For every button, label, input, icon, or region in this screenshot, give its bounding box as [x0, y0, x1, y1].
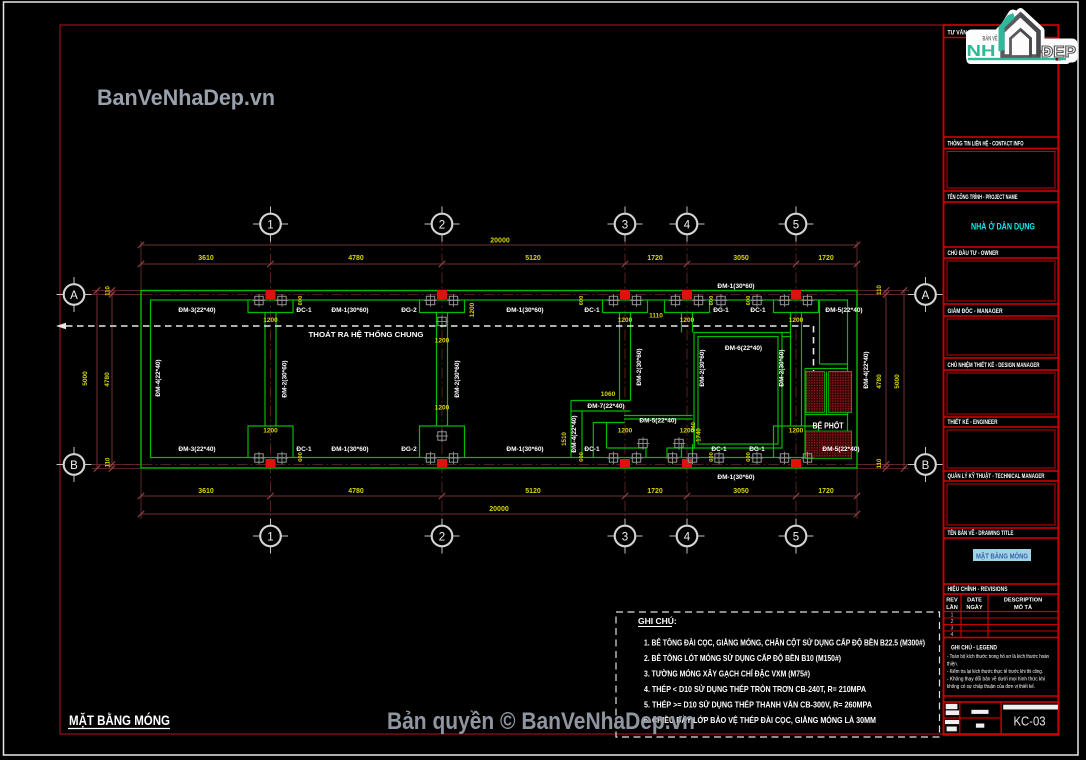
svg-text:4780: 4780	[876, 374, 883, 389]
svg-text:ĐM-5(22*40): ĐM-5(22*40)	[822, 446, 859, 453]
svg-text:4: 4	[684, 531, 691, 543]
svg-text:3050: 3050	[733, 255, 749, 262]
svg-text:Bản quyền © BanVeNhaDep.vn: Bản quyền © BanVeNhaDep.vn	[387, 708, 695, 735]
svg-text:4780: 4780	[348, 488, 364, 495]
svg-text:3610: 3610	[198, 255, 214, 262]
svg-text:1: 1	[267, 219, 273, 231]
svg-text:1200: 1200	[789, 317, 804, 324]
svg-text:LẦN: LẦN	[946, 604, 958, 611]
svg-text:A: A	[70, 290, 78, 302]
svg-text:1720: 1720	[647, 255, 663, 262]
svg-text:GIÁM ĐỐC - MANAGER: GIÁM ĐỐC - MANAGER	[948, 305, 1003, 315]
svg-text:ĐM-3(22*40): ĐM-3(22*40)	[178, 446, 215, 453]
svg-text:ĐM-1(30*60): ĐM-1(30*60)	[506, 446, 543, 453]
svg-text:CHỦ NHIỆM THIẾT KẾ - DESIGN MA: CHỦ NHIỆM THIẾT KẾ - DESIGN MANAGER	[948, 359, 1040, 369]
svg-text:1720: 1720	[818, 255, 834, 262]
svg-text:ĐC-1: ĐC-1	[750, 307, 766, 314]
svg-text:không có sự chấp thuận của đơn: không có sự chấp thuận của đơn vị thiết …	[947, 683, 1035, 690]
svg-text:1200: 1200	[618, 317, 633, 324]
svg-text:MẶT BẰNG MÓNG: MẶT BẰNG MÓNG	[69, 713, 170, 728]
svg-text:- Toàn bộ kích thước trong hồ: - Toàn bộ kích thước trong hồ sơ là kích…	[947, 654, 1049, 660]
svg-text:2: 2	[439, 531, 445, 543]
svg-text:110: 110	[877, 285, 883, 295]
svg-text:3. TƯỜNG MÓNG XÂY GẠCH CHỈ ĐẶC: 3. TƯỜNG MÓNG XÂY GẠCH CHỈ ĐẶC VXM (M75#…	[644, 668, 810, 679]
svg-text:3050: 3050	[733, 488, 749, 495]
svg-text:600: 600	[746, 452, 752, 462]
svg-text:4: 4	[684, 219, 691, 231]
svg-text:1720: 1720	[647, 488, 663, 495]
svg-text:ĐM-2(30*60): ĐM-2(30*60)	[454, 360, 461, 397]
svg-text:2. BÊ TÔNG LÓT MÓNG SỬ DỤNG CẤ: 2. BÊ TÔNG LÓT MÓNG SỬ DỤNG CẤP ĐỘ BỀN B…	[644, 652, 841, 663]
svg-text:2: 2	[951, 619, 954, 625]
svg-text:DATE: DATE	[967, 598, 982, 604]
svg-text:3: 3	[951, 626, 954, 632]
svg-text:ĐM-1(30*60): ĐM-1(30*60)	[506, 307, 543, 314]
svg-text:1060: 1060	[601, 391, 616, 398]
svg-text:1110: 1110	[649, 313, 663, 320]
svg-text:MÔ TẢ: MÔ TẢ	[1014, 603, 1032, 611]
svg-text:ĐM-7(22*40): ĐM-7(22*40)	[587, 403, 624, 410]
svg-text:600: 600	[298, 296, 304, 306]
svg-text:5120: 5120	[525, 255, 541, 262]
svg-text:5: 5	[793, 219, 799, 231]
svg-text:1200: 1200	[435, 338, 450, 345]
svg-text:1200: 1200	[469, 302, 476, 317]
svg-text:ĐM-2(30*60): ĐM-2(30*60)	[636, 348, 643, 385]
svg-text:NH: NH	[967, 43, 996, 60]
svg-text:ĐM-3(22*40): ĐM-3(22*40)	[178, 307, 215, 314]
svg-text:1. BÊ TÔNG ĐÀI CỌC, GIẰNG MÓNG: 1. BÊ TÔNG ĐÀI CỌC, GIẰNG MÓNG, CHÂN CỘT…	[644, 637, 925, 648]
svg-text:- Không thay đổi bản vẽ dưới m: - Không thay đổi bản vẽ dưới mọi hình th…	[947, 676, 1045, 683]
svg-text:HIỆU CHỈNH - REVISIONS: HIỆU CHỈNH - REVISIONS	[948, 584, 1009, 593]
svg-text:1200: 1200	[618, 428, 633, 435]
svg-text:MẶT BẰNG MÓNG: MẶT BẰNG MÓNG	[976, 552, 1028, 561]
svg-text:NGÀY: NGÀY	[966, 604, 982, 611]
svg-text:KC-03: KC-03	[1014, 715, 1046, 729]
svg-text:5000: 5000	[894, 374, 901, 389]
svg-text:110: 110	[877, 458, 883, 468]
svg-text:2: 2	[439, 219, 445, 231]
svg-text:5120: 5120	[525, 488, 541, 495]
svg-text:ĐM-2(30*60): ĐM-2(30*60)	[699, 349, 706, 386]
svg-text:600: 600	[579, 296, 585, 306]
svg-text:GHI CHÚ:: GHI CHÚ:	[638, 615, 677, 626]
svg-text:B: B	[922, 460, 930, 472]
svg-text:940: 940	[691, 422, 697, 432]
svg-text:5000: 5000	[82, 371, 89, 386]
svg-text:3610: 3610	[198, 488, 214, 495]
svg-text:ĐC-1: ĐC-1	[296, 446, 312, 453]
svg-text:TÊN CÔNG TRÌNH - PROJECT NAME: TÊN CÔNG TRÌNH - PROJECT NAME	[948, 192, 1018, 201]
svg-text:- Kiểm tra lại kích thước thực: - Kiểm tra lại kích thước thực tế trước …	[947, 668, 1043, 675]
svg-text:ĐG-1: ĐG-1	[749, 446, 765, 453]
svg-text:ĐG-2: ĐG-2	[401, 307, 417, 314]
svg-text:1720: 1720	[818, 488, 834, 495]
svg-text:DESCRIPTION: DESCRIPTION	[1004, 598, 1042, 604]
svg-text:3: 3	[622, 219, 628, 231]
svg-text:ĐM-1(30*60): ĐM-1(30*60)	[717, 474, 754, 481]
svg-text:BanVeNhaDep.vn: BanVeNhaDep.vn	[97, 85, 275, 110]
svg-text:ĐM-1(30*60): ĐM-1(30*60)	[331, 307, 368, 314]
svg-text:1200: 1200	[789, 428, 804, 435]
svg-text:ĐM-1(30*60): ĐM-1(30*60)	[717, 283, 754, 290]
svg-text:110: 110	[106, 457, 112, 467]
svg-text:ĐC-1: ĐC-1	[584, 307, 600, 314]
svg-text:4780: 4780	[104, 372, 111, 387]
svg-text:ĐM-4(22*40): ĐM-4(22*40)	[571, 415, 578, 452]
svg-text:ĐG-2: ĐG-2	[401, 446, 417, 453]
svg-text:GHI CHÚ - LEGEND: GHI CHÚ - LEGEND	[951, 643, 997, 652]
svg-text:4. THÉP < D10 SỬ DỤNG THÉP TRÒ: 4. THÉP < D10 SỬ DỤNG THÉP TRÒN TRƠN CB-…	[644, 683, 866, 694]
svg-text:3: 3	[622, 531, 628, 543]
svg-text:ĐC-1: ĐC-1	[711, 446, 727, 453]
svg-text:1200: 1200	[680, 317, 695, 324]
svg-text:600: 600	[709, 296, 715, 306]
svg-text:NHÀ Ở DÂN DỤNG: NHÀ Ở DÂN DỤNG	[971, 221, 1035, 232]
svg-text:thiện.: thiện.	[947, 662, 958, 668]
svg-text:ĐM-4(22*40): ĐM-4(22*40)	[155, 359, 162, 396]
svg-text:ĐM-4(22*40): ĐM-4(22*40)	[863, 351, 870, 388]
svg-text:600: 600	[579, 452, 585, 462]
svg-text:REV: REV	[946, 598, 958, 604]
svg-text:ĐM-5(22*40): ĐM-5(22*40)	[639, 418, 676, 425]
svg-text:TÊN BẢN VẼ - DRAWING TITLE: TÊN BẢN VẼ - DRAWING TITLE	[948, 528, 1015, 537]
svg-text:1200: 1200	[435, 405, 450, 412]
svg-text:THÔNG TIN LIÊN HỆ - CONTACT IN: THÔNG TIN LIÊN HỆ - CONTACT INFO	[948, 139, 1024, 148]
svg-text:ĐG-1: ĐG-1	[713, 307, 729, 314]
svg-text:B: B	[70, 460, 78, 472]
svg-text:A: A	[922, 290, 930, 302]
svg-text:ĐM-2(30*60): ĐM-2(30*60)	[779, 349, 786, 386]
svg-text:ĐM-2(30*60): ĐM-2(30*60)	[282, 360, 289, 397]
svg-text:600: 600	[709, 452, 715, 462]
svg-text:600: 600	[746, 296, 752, 306]
svg-text:ĐC-1: ĐC-1	[584, 446, 600, 453]
svg-text:110: 110	[106, 286, 112, 296]
svg-text:THOÁT RA HỆ THỐNG CHUNG: THOÁT RA HỆ THỐNG CHUNG	[309, 329, 424, 339]
svg-text:BẢN VẼ: BẢN VẼ	[983, 36, 998, 43]
svg-text:20000: 20000	[490, 238, 510, 245]
svg-text:600: 600	[298, 452, 304, 462]
svg-text:1: 1	[267, 531, 273, 543]
svg-text:ĐM-5(22*40): ĐM-5(22*40)	[825, 307, 862, 314]
svg-text:1200: 1200	[263, 428, 278, 435]
svg-text:ĐM-1(30*60): ĐM-1(30*60)	[331, 446, 368, 453]
svg-text:5: 5	[793, 531, 799, 543]
svg-text:BỂ PHỐT: BỂ PHỐT	[813, 421, 844, 431]
svg-text:CHỦ ĐẦU TƯ - OWNER: CHỦ ĐẦU TƯ - OWNER	[948, 247, 999, 257]
svg-text:20000: 20000	[489, 506, 509, 513]
svg-text:1510: 1510	[561, 432, 568, 446]
svg-text:4780: 4780	[348, 255, 364, 262]
svg-text:1200: 1200	[263, 317, 278, 324]
svg-text:ĐM-6(22*40): ĐM-6(22*40)	[725, 345, 762, 352]
svg-text:1: 1	[951, 613, 954, 619]
svg-text:ĐC-1: ĐC-1	[296, 307, 312, 314]
svg-text:QUẢN LÝ KỸ THUẬT - TECHNICAL M: QUẢN LÝ KỸ THUẬT - TECHNICAL MANAGER	[948, 471, 1045, 480]
